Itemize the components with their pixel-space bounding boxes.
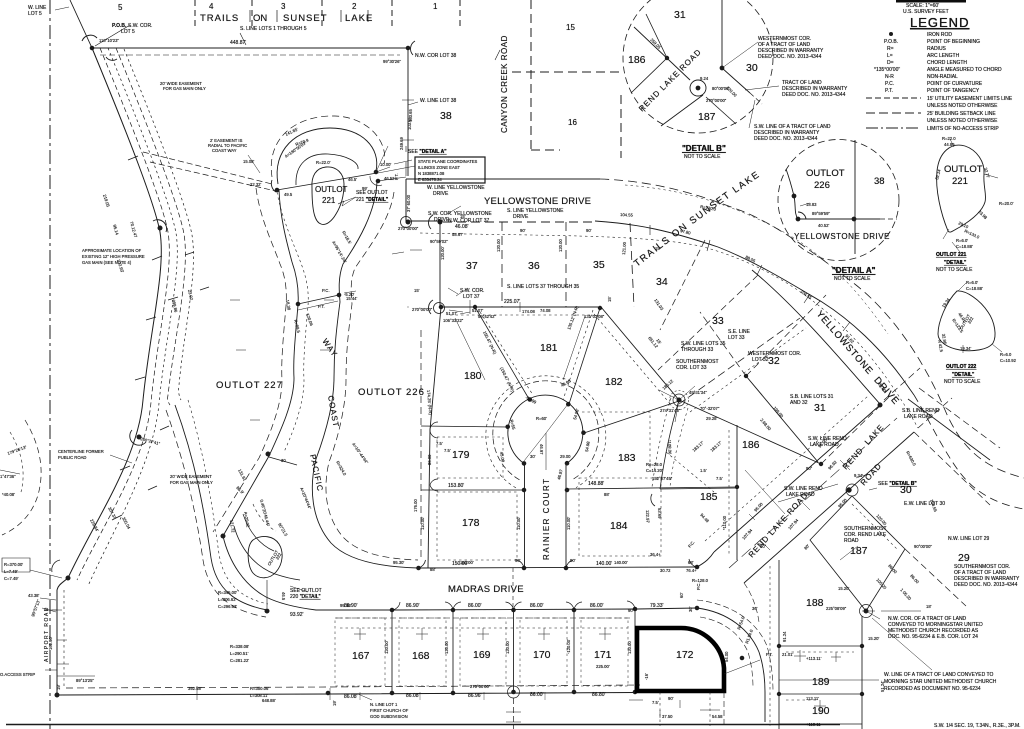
svg-text:NOT TO SCALE: NOT TO SCALE — [684, 154, 721, 160]
svg-text:SUNSET: SUNSET — [283, 13, 328, 24]
svg-text:46.08': 46.08' — [455, 224, 469, 230]
svg-text:30.72: 30.72 — [660, 568, 671, 573]
svg-text:25' BUILDING SETBACK LINE: 25' BUILDING SETBACK LINE — [927, 111, 996, 117]
svg-text:152°07'45": 152°07'45" — [652, 476, 673, 481]
svg-text:15': 15' — [414, 288, 420, 293]
svg-text:43.38': 43.38' — [28, 593, 39, 598]
svg-text:POINT OF BEGINNING: POINT OF BEGINNING — [927, 39, 980, 45]
svg-text:DEED DOC. NO. 2013-4344: DEED DOC. NO. 2013-4344 — [754, 136, 818, 142]
svg-text:103.65: 103.65 — [408, 109, 413, 122]
svg-text:SEE OUTLOT: SEE OUTLOT — [356, 190, 388, 196]
svg-text:N. LINE LOT 1: N. LINE LOT 1 — [370, 702, 398, 707]
svg-text:54.58: 54.58 — [712, 714, 723, 719]
svg-text:90°: 90° — [806, 466, 813, 471]
svg-text:226: 226 — [814, 180, 830, 191]
svg-text:168: 168 — [412, 650, 430, 662]
svg-text:LOT 33: LOT 33 — [728, 335, 745, 341]
svg-text:110.00': 110.00' — [420, 517, 425, 530]
svg-text:93.92': 93.92' — [290, 612, 304, 618]
svg-text:4: 4 — [209, 2, 214, 11]
svg-text:51.07': 51.07' — [472, 308, 483, 313]
svg-text:N.W. COR LOT 37: N.W. COR LOT 37 — [448, 218, 490, 224]
svg-text:29.00: 29.00 — [560, 454, 571, 459]
svg-text:7.5': 7.5' — [652, 700, 659, 705]
svg-text:89°59'59": 89°59'59" — [812, 211, 830, 216]
svg-text:21.01': 21.01' — [782, 652, 793, 657]
svg-text:FOR GAS MAIN ONLY: FOR GAS MAIN ONLY — [163, 86, 206, 91]
svg-text:86.00': 86.00' — [530, 692, 544, 698]
svg-text:174.08: 174.08 — [522, 309, 535, 314]
svg-text:38: 38 — [440, 110, 452, 122]
svg-text:W. LINE OF A TRACT OF LAND CON: W. LINE OF A TRACT OF LAND CONVEYED TO — [884, 672, 993, 678]
svg-text:79.33': 79.33' — [650, 603, 664, 609]
svg-text:30: 30 — [281, 458, 286, 463]
svg-text:RECORDED AS DOCUMENT NO. 95-62: RECORDED AS DOCUMENT NO. 95-6234 — [884, 686, 981, 692]
svg-text:LOT 5: LOT 5 — [28, 11, 42, 17]
svg-text:CHORD LENGTH: CHORD LENGTH — [927, 60, 967, 66]
svg-text:AIRPORT ROAD: AIRPORT ROAD — [44, 606, 50, 662]
svg-text:150.00': 150.00' — [460, 560, 474, 565]
svg-text:187: 187 — [698, 111, 716, 123]
svg-text:86.00: 86.00 — [427, 454, 432, 465]
svg-text:30': 30' — [688, 606, 693, 612]
svg-text:40.52': 40.52' — [818, 223, 829, 228]
svg-text:P.T.: P.T. — [394, 173, 399, 180]
svg-text:PUBLIC ROAD: PUBLIC ROAD — [58, 455, 86, 460]
svg-text:274°31'43": 274°31'43" — [660, 408, 681, 413]
svg-text:54.00: 54.00 — [724, 651, 729, 662]
svg-text:90': 90' — [570, 558, 576, 563]
svg-text:70°-32'07": 70°-32'07" — [700, 406, 720, 411]
svg-text:86.08': 86.08' — [344, 694, 358, 700]
svg-text:221: 221 — [322, 196, 336, 205]
svg-text:R=345.00': R=345.00' — [218, 590, 237, 595]
svg-text:15' UTILITY EASEMENT LIMITS LI: 15' UTILITY EASEMENT LIMITS LINE — [927, 96, 1013, 102]
svg-text:270°00'00": 270°00'00" — [470, 684, 491, 689]
svg-text:THROUGH 33: THROUGH 33 — [681, 347, 713, 353]
svg-text:UNLESS NOTED OTHERWISE: UNLESS NOTED OTHERWISE — [927, 118, 998, 124]
svg-text:270°00'00": 270°00'00" — [412, 307, 433, 312]
svg-text:76.4+: 76.4+ — [686, 568, 697, 573]
svg-text:LIMITS OF NO-ACCESS STRIP: LIMITS OF NO-ACCESS STRIP — [927, 126, 999, 132]
svg-text:L=306.62': L=306.62' — [218, 597, 237, 602]
svg-text:221: 221 — [952, 176, 968, 187]
svg-text:GAS MAIN (SEE NOTE 4): GAS MAIN (SEE NOTE 4) — [82, 260, 132, 265]
svg-text:3: 3 — [281, 2, 286, 11]
svg-text:90': 90' — [515, 558, 521, 563]
svg-text:36: 36 — [528, 260, 540, 272]
svg-text:448.87': 448.87' — [230, 40, 246, 46]
svg-text:86.00': 86.00' — [468, 603, 482, 609]
svg-text:7.5': 7.5' — [716, 476, 723, 481]
svg-text:OUTLOT: OUTLOT — [806, 168, 845, 179]
svg-text:99': 99' — [362, 186, 368, 191]
svg-text:RAINIER COURT: RAINIER COURT — [542, 478, 551, 560]
svg-text:161.90': 161.90' — [48, 636, 53, 650]
svg-text:186: 186 — [628, 54, 646, 66]
svg-text:188: 188 — [806, 597, 824, 609]
svg-text:P.C.: P.C. — [885, 81, 894, 87]
svg-text:113.11': 113.11' — [806, 696, 819, 701]
svg-text:FOR GAS MAIN ONLY: FOR GAS MAIN ONLY — [170, 480, 213, 485]
svg-text:185: 185 — [700, 491, 718, 503]
svg-text:53.69: 53.69 — [657, 508, 662, 519]
svg-text:R=370.00': R=370.00' — [4, 562, 23, 567]
svg-text:49°31'34": 49°31'34" — [689, 390, 707, 395]
svg-text:N.W. LINE LOT 29: N.W. LINE LOT 29 — [948, 536, 990, 542]
svg-text:E.W. LINE LOT 30: E.W. LINE LOT 30 — [904, 501, 945, 507]
svg-text:110°10'23": 110°10'23" — [99, 38, 119, 43]
svg-text:249.69: 249.69 — [399, 137, 404, 150]
svg-text:22.32': 22.32' — [250, 182, 261, 187]
svg-text:OUTLOT 222: OUTLOT 222 — [946, 364, 977, 370]
svg-text:NOT TO SCALE: NOT TO SCALE — [936, 267, 973, 273]
svg-text:R=22.0: R=22.0 — [942, 136, 956, 141]
svg-text:44.89: 44.89 — [944, 142, 955, 147]
svg-text:COR. LOT 33: COR. LOT 33 — [676, 365, 707, 371]
svg-text:POINT OF TANGENCY: POINT OF TANGENCY — [927, 88, 980, 94]
svg-text:*108.06: *108.06 — [667, 440, 673, 455]
svg-text:"DETAIL B": "DETAIL B" — [682, 144, 726, 153]
svg-text:19.34': 19.34' — [960, 346, 971, 351]
svg-text:MADRAS DRIVE: MADRAS DRIVE — [448, 584, 524, 595]
svg-text:1°47'36": 1°47'36" — [0, 474, 16, 479]
svg-text:L=7.49': L=7.49' — [4, 569, 18, 574]
svg-text:178: 178 — [462, 517, 480, 529]
svg-text:ON: ON — [253, 13, 267, 24]
svg-text:IRON ROD: IRON ROD — [927, 32, 952, 38]
svg-text:MORNING STAR UNITED METHODIST: MORNING STAR UNITED METHODIST CHURCH — [884, 679, 997, 685]
svg-text:106°33'22": 106°33'22" — [443, 318, 464, 323]
svg-text:110.00': 110.00' — [566, 517, 571, 530]
svg-text:9.34': 9.34' — [854, 473, 863, 478]
svg-text:SEE "DETAIL B": SEE "DETAIL B" — [878, 481, 917, 487]
svg-text:58.67': 58.67' — [452, 232, 463, 237]
svg-text:60': 60' — [679, 592, 684, 598]
svg-text:L=308.11': L=308.11' — [250, 693, 268, 698]
svg-text:OUTLOT 227: OUTLOT 227 — [216, 380, 283, 391]
svg-text:CANYON CREEK ROAD: CANYON CREEK ROAD — [500, 35, 509, 133]
svg-text:R=60': R=60' — [536, 416, 547, 421]
svg-text:270°00'00": 270°00'00" — [706, 98, 727, 103]
svg-text:187: 187 — [850, 545, 868, 557]
svg-text:P.T.: P.T. — [318, 304, 325, 309]
svg-text:DRIVE: DRIVE — [513, 214, 529, 220]
svg-text:36.4+: 36.4+ — [650, 552, 661, 557]
svg-text:120.00: 120.00 — [627, 641, 632, 654]
svg-text:95.30': 95.30' — [393, 560, 404, 565]
svg-text:LAKE ROAD: LAKE ROAD — [786, 492, 815, 498]
svg-text:OUTLOT 221: OUTLOT 221 — [936, 252, 967, 258]
svg-text:180: 180 — [464, 370, 482, 382]
svg-text:+113.11': +113.11' — [806, 656, 822, 661]
svg-text:140.00': 140.00' — [614, 560, 628, 565]
svg-text:86.08': 86.08' — [406, 693, 420, 699]
svg-text:220 "DETAIL": 220 "DETAIL" — [290, 594, 321, 600]
svg-text:392.58': 392.58' — [188, 686, 202, 691]
svg-text:30: 30 — [746, 62, 758, 74]
svg-text:37' 60.00: 37' 60.00 — [406, 194, 411, 212]
svg-text:"DETAIL A": "DETAIL A" — [832, 266, 876, 275]
svg-text:148.88': 148.88' — [588, 481, 604, 487]
svg-text:LOT 5: LOT 5 — [121, 29, 135, 35]
svg-text:68': 68' — [688, 560, 694, 565]
svg-text:"DETAIL": "DETAIL" — [952, 372, 975, 378]
svg-text:29.28': 29.28' — [706, 416, 717, 421]
svg-text:221 "DETAIL": 221 "DETAIL" — [356, 197, 389, 203]
svg-text:169: 169 — [473, 649, 491, 661]
svg-text:2: 2 — [352, 2, 357, 11]
svg-text:P.T.: P.T. — [766, 652, 773, 657]
svg-text:OUTLOT: OUTLOT — [315, 185, 348, 194]
svg-text:90°59'02": 90°59'02" — [430, 239, 448, 244]
svg-text:S. LINE LOTS 1 THROUGH 5: S. LINE LOTS 1 THROUGH 5 — [240, 26, 307, 32]
svg-text:O.ACCESS STRIP: O.ACCESS STRIP — [0, 672, 35, 677]
svg-text:9.24: 9.24 — [700, 76, 709, 81]
svg-text:R=: R= — [887, 46, 894, 52]
svg-text:110.00': 110.00' — [516, 517, 521, 530]
svg-text:N-R: N-R — [885, 74, 894, 80]
svg-text:140.00': 140.00' — [596, 561, 612, 567]
svg-text:167: 167 — [352, 650, 370, 662]
svg-text:36': 36' — [752, 606, 758, 611]
svg-text:7.5': 7.5' — [436, 441, 443, 446]
svg-text:104.55: 104.55 — [620, 212, 634, 218]
svg-text:20' WIDE EASEMENT: 20' WIDE EASEMENT — [170, 474, 212, 479]
svg-text:120.00: 120.00 — [496, 239, 501, 252]
svg-text:34: 34 — [656, 276, 668, 288]
svg-text:COAST WAY: COAST WAY — [212, 148, 237, 153]
svg-text:88': 88' — [430, 567, 436, 572]
svg-text:NOT TO SCALE: NOT TO SCALE — [834, 276, 871, 282]
svg-text:*110.00: *110.00 — [722, 515, 727, 530]
svg-text:ANGLE MEASURED TO CHORD: ANGLE MEASURED TO CHORD — [927, 67, 1002, 73]
svg-text:DEED DOC. NO. 2013-4344: DEED DOC. NO. 2013-4344 — [954, 582, 1018, 588]
svg-text:91.24: 91.24 — [782, 631, 787, 642]
svg-text:DRIVE: DRIVE — [433, 191, 449, 197]
svg-text:ARC LENGTH: ARC LENGTH — [927, 53, 960, 59]
svg-text:C=18.88': C=18.88' — [956, 244, 973, 249]
svg-text:-16': -16' — [644, 673, 649, 680]
svg-text:POINT OF CURVATURE: POINT OF CURVATURE — [927, 81, 983, 87]
svg-text:W. LINE LOT 38: W. LINE LOT 38 — [420, 98, 457, 104]
svg-text:120.00': 120.00' — [440, 246, 445, 260]
svg-text:R=6.0': R=6.0' — [966, 280, 978, 285]
svg-text:74.08: 74.08 — [540, 308, 551, 313]
svg-text:APPROXIMATE LOCATION OF: APPROXIMATE LOCATION OF — [82, 248, 142, 253]
svg-text:46.52: 46.52 — [384, 176, 395, 181]
svg-text:225.07': 225.07' — [504, 299, 520, 305]
svg-text:153.80': 153.80' — [448, 483, 464, 489]
svg-text:LAKE ROAD: LAKE ROAD — [904, 414, 933, 420]
svg-text:181: 181 — [540, 342, 558, 354]
svg-text:86.96': 86.96' — [468, 693, 482, 699]
svg-text:19': 19' — [56, 684, 61, 690]
svg-text:225°08'09": 225°08'09" — [826, 606, 847, 611]
svg-text:16: 16 — [568, 118, 577, 127]
svg-text:186: 186 — [742, 439, 760, 451]
svg-text:R=22.0': R=22.0' — [316, 160, 331, 165]
svg-text:NOT TO SCALE: NOT TO SCALE — [944, 379, 981, 385]
svg-text:170: 170 — [533, 649, 551, 661]
svg-text:189: 189 — [812, 676, 830, 688]
svg-text:P.O.B.: P.O.B. — [884, 39, 898, 45]
svg-text:5: 5 — [118, 3, 123, 12]
svg-text:120.00: 120.00 — [558, 239, 563, 252]
svg-text:DEED DOC. NO. 2013-4344: DEED DOC. NO. 2013-4344 — [758, 54, 822, 60]
svg-text:46.97: 46.97 — [539, 444, 544, 455]
svg-text:R=338.08': R=338.08' — [230, 644, 249, 649]
svg-text:LEGEND: LEGEND — [910, 15, 969, 30]
svg-text:184: 184 — [610, 520, 628, 532]
svg-text:E 835478.24: E 835478.24 — [418, 177, 442, 182]
svg-text:OUTLOT: OUTLOT — [944, 164, 983, 175]
svg-text:C=10.92: C=10.92 — [1000, 358, 1017, 363]
svg-text:C=18.88': C=18.88' — [966, 286, 983, 291]
svg-text:1: 1 — [433, 2, 438, 11]
svg-text:19': 19' — [332, 700, 337, 706]
svg-text:D=: D= — [887, 60, 894, 66]
svg-text:86.80': 86.80' — [592, 692, 606, 698]
svg-text:15': 15' — [655, 246, 661, 251]
svg-text:15.20': 15.20' — [838, 586, 849, 591]
svg-text:648.88': 648.88' — [262, 698, 276, 703]
svg-text:OUTLOT 226: OUTLOT 226 — [358, 387, 425, 398]
svg-text:C=296.63': C=296.63' — [218, 604, 237, 609]
svg-text:88': 88' — [604, 492, 610, 497]
svg-text:46.5': 46.5' — [348, 177, 357, 182]
svg-text:18.83: 18.83 — [806, 202, 817, 207]
svg-text:31: 31 — [674, 9, 686, 21]
svg-text:131°03'08": 131°03'08" — [584, 314, 605, 319]
svg-text:18': 18' — [926, 604, 932, 609]
svg-text:90°: 90° — [628, 608, 635, 613]
svg-text:29: 29 — [958, 552, 970, 564]
svg-text:90': 90' — [668, 696, 674, 701]
svg-text:35: 35 — [593, 259, 605, 271]
svg-text:49.5: 49.5 — [284, 192, 293, 197]
svg-text:CENTERLINE FORMER: CENTERLINE FORMER — [58, 449, 104, 454]
svg-text:*135°00'00": *135°00'00" — [874, 67, 900, 73]
svg-text:120.00: 120.00 — [444, 641, 449, 654]
svg-text:R=128.0: R=128.0 — [692, 578, 709, 583]
svg-text:-120.00': -120.00' — [566, 639, 571, 654]
svg-text:C=7.49': C=7.49' — [4, 576, 19, 581]
svg-text:176.00: 176.00 — [413, 499, 418, 512]
svg-text:90': 90' — [520, 228, 526, 233]
svg-text:183: 183 — [618, 452, 636, 464]
svg-text:L=: L= — [887, 53, 893, 59]
svg-text:R=20.0': R=20.0' — [999, 201, 1014, 206]
svg-text:LOT 37: LOT 37 — [463, 294, 480, 300]
svg-text:33: 33 — [712, 315, 724, 327]
svg-text:+113.11: +113.11 — [806, 722, 821, 727]
svg-text:120.00': 120.00' — [384, 640, 389, 654]
svg-text:37.50: 37.50 — [662, 714, 673, 719]
svg-text:31: 31 — [814, 402, 826, 414]
svg-text:S. LINE LOTS 37 THROUGH 35: S. LINE LOTS 37 THROUGH 35 — [507, 284, 579, 290]
svg-text:182: 182 — [605, 376, 623, 388]
svg-text:DOC. NO. 95-6234 & E.B. COR. L: DOC. NO. 95-6234 & E.B. COR. LOT 24 — [888, 634, 978, 640]
svg-text:90°00'00": 90°00'00" — [914, 544, 932, 549]
svg-text:STATE PLANE COORDINATES: STATE PLANE COORDINATES — [418, 159, 478, 164]
svg-text:270°00'00": 270°00'00" — [398, 226, 419, 231]
svg-text:S.W. 1/4 SEC. 19, T.34N., R.3E: S.W. 1/4 SEC. 19, T.34N., R.3E., 3P.M. — [934, 723, 1021, 729]
svg-text:86.00': 86.00' — [590, 603, 604, 609]
svg-text:LAKE: LAKE — [345, 13, 373, 24]
svg-text:1.5': 1.5' — [700, 468, 707, 473]
svg-text:TRAILS: TRAILS — [200, 13, 239, 24]
svg-text:R=350.06': R=350.06' — [250, 686, 269, 691]
svg-text:NON-RADIAL: NON-RADIAL — [927, 74, 958, 80]
svg-text:UNLESS NOTED OTHERWISE: UNLESS NOTED OTHERWISE — [927, 103, 998, 109]
svg-text:C=281.22': C=281.22' — [230, 658, 249, 663]
svg-text:15': 15' — [607, 296, 612, 302]
svg-text:99°30'26": 99°30'26" — [383, 59, 401, 64]
svg-text:EXISTING 12" HIGH PRESSURE: EXISTING 12" HIGH PRESSURE — [82, 254, 145, 259]
svg-text:P.C.: P.C. — [322, 288, 330, 293]
svg-text:*40.08': *40.08' — [2, 492, 15, 497]
svg-text:172: 172 — [676, 649, 694, 661]
svg-text:C=14.20': C=14.20' — [646, 468, 663, 473]
svg-text:10.00': 10.00' — [380, 162, 391, 167]
svg-text:225.00': 225.00' — [596, 664, 610, 669]
svg-text:15': 15' — [460, 214, 466, 219]
svg-text:120.00: 120.00 — [505, 641, 510, 654]
svg-text:89°13'25": 89°13'25" — [76, 678, 94, 683]
svg-text:AND 32: AND 32 — [790, 400, 808, 406]
svg-text:59°42'42": 59°42'42" — [478, 314, 496, 319]
svg-text:171: 171 — [594, 649, 612, 661]
svg-text:N.W. COR LOT 38: N.W. COR LOT 38 — [415, 53, 457, 59]
svg-text:P.T.: P.T. — [885, 88, 893, 94]
svg-text:86.00': 86.00' — [530, 603, 544, 609]
svg-text:R=6.0': R=6.0' — [956, 238, 968, 243]
svg-text:"DETAIL": "DETAIL" — [944, 260, 967, 266]
svg-text:N 1838871.08: N 1838871.08 — [418, 171, 445, 176]
svg-text:ROAD: ROAD — [844, 538, 859, 544]
svg-text:R=6.0: R=6.0 — [1000, 352, 1012, 357]
svg-text:P.C.: P.C. — [696, 582, 701, 590]
svg-text:51.07': 51.07' — [446, 311, 457, 316]
svg-text:86.90': 86.90' — [406, 603, 420, 609]
svg-text:7.5': 7.5' — [444, 448, 451, 453]
svg-text:122.97: 122.97 — [645, 510, 650, 524]
svg-text:90': 90' — [586, 228, 592, 233]
svg-text:YELLOWSTONE DRIVE: YELLOWSTONE DRIVE — [484, 196, 591, 207]
svg-text:15.08': 15.08' — [243, 159, 254, 164]
svg-text:46.5: 46.5 — [281, 592, 286, 601]
svg-text:15.20': 15.20' — [868, 636, 879, 641]
svg-text:RADIUS: RADIUS — [927, 46, 947, 52]
svg-text:FIRST CHURCH OF: FIRST CHURCH OF — [370, 708, 409, 713]
svg-text:YELLOWSTONE DRIVE: YELLOWSTONE DRIVE — [794, 232, 890, 241]
svg-text:15.44': 15.44' — [346, 296, 357, 301]
svg-text:GOD SUBDIVISION: GOD SUBDIVISION — [370, 714, 408, 719]
svg-text:SEE "DETAIL A": SEE "DETAIL A" — [408, 149, 447, 155]
svg-text:38: 38 — [874, 176, 885, 187]
svg-text:LOT 32: LOT 32 — [752, 357, 769, 363]
svg-text:30': 30' — [530, 454, 536, 459]
svg-text:190: 190 — [812, 705, 830, 717]
svg-text:ILLINOIS ZONE EAST: ILLINOIS ZONE EAST — [418, 165, 461, 170]
svg-text:15: 15 — [566, 23, 575, 32]
svg-text:179: 179 — [452, 449, 470, 461]
svg-text:90°: 90° — [760, 544, 767, 549]
svg-text:37: 37 — [466, 260, 478, 272]
svg-text:DEED DOC. NO. 2013-4344: DEED DOC. NO. 2013-4344 — [782, 92, 846, 98]
svg-text:L=290.51': L=290.51' — [230, 651, 249, 656]
